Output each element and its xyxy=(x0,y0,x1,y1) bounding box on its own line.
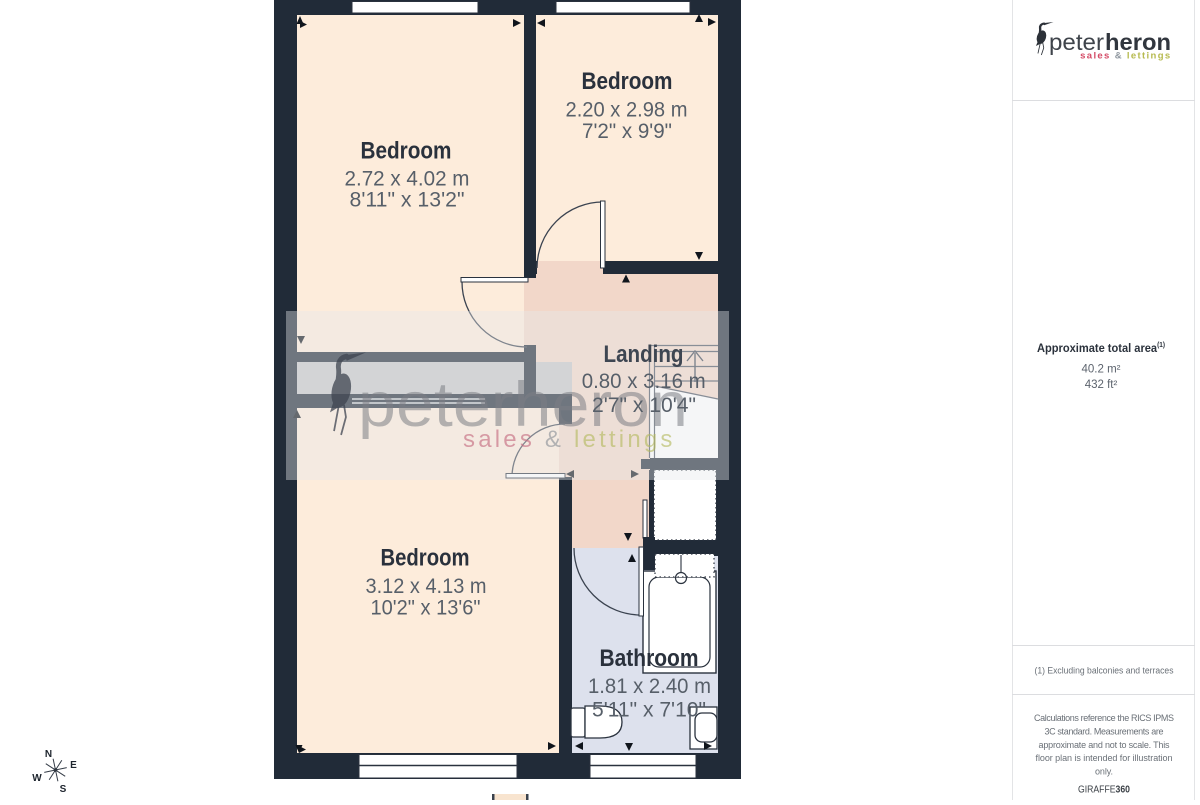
svg-text:Bedroom: Bedroom xyxy=(381,545,470,572)
svg-text:3.12 x 4.13 m: 3.12 x 4.13 m xyxy=(366,575,487,598)
svg-text:E: E xyxy=(70,760,77,771)
svg-text:floor plan is intended for ill: floor plan is intended for illustration xyxy=(1036,753,1173,763)
svg-text:N: N xyxy=(45,749,52,760)
svg-text:5'11" x 7'10": 5'11" x 7'10" xyxy=(592,699,706,722)
svg-text:Calculations reference the RIC: Calculations reference the RICS IPMS xyxy=(1034,713,1174,723)
svg-text:Bedroom: Bedroom xyxy=(582,68,673,95)
svg-text:GIRAFFE360: GIRAFFE360 xyxy=(1078,783,1130,795)
svg-text:S: S xyxy=(60,784,67,795)
svg-text:8'11" x 13'2": 8'11" x 13'2" xyxy=(350,189,465,212)
svg-text:10'2" x 13'6": 10'2" x 13'6" xyxy=(371,597,481,620)
svg-text:Bathroom: Bathroom xyxy=(600,645,699,672)
svg-text:2.72 x 4.02 m: 2.72 x 4.02 m xyxy=(345,168,470,191)
svg-text:sales & lettings: sales & lettings xyxy=(463,426,676,453)
svg-text:Approximate total area(1): Approximate total area(1) xyxy=(1037,341,1165,355)
svg-text:432 ft²: 432 ft² xyxy=(1085,379,1118,391)
svg-text:7'2" x 9'9": 7'2" x 9'9" xyxy=(582,120,672,143)
svg-text:Bedroom: Bedroom xyxy=(361,138,452,165)
svg-text:approximate and not to scale.: approximate and not to scale. This xyxy=(1039,740,1171,750)
svg-text:1.81 x 2.40 m: 1.81 x 2.40 m xyxy=(588,675,711,698)
svg-text:40.2 m²: 40.2 m² xyxy=(1082,364,1121,376)
svg-text:sales & lettings: sales & lettings xyxy=(1080,51,1171,62)
svg-text:0.80 x 3.16 m: 0.80 x 3.16 m xyxy=(582,370,706,393)
svg-text:Landing: Landing xyxy=(604,341,684,368)
svg-text:only.: only. xyxy=(1095,767,1113,777)
svg-text:W: W xyxy=(32,773,42,784)
svg-text:2'7" x 10'4": 2'7" x 10'4" xyxy=(592,394,696,417)
svg-text:3C standard. Measurements are: 3C standard. Measurements are xyxy=(1045,726,1164,736)
svg-text:(1) Excluding balconies and te: (1) Excluding balconies and terraces xyxy=(1035,666,1175,676)
svg-text:2.20 x 2.98 m: 2.20 x 2.98 m xyxy=(566,99,688,122)
